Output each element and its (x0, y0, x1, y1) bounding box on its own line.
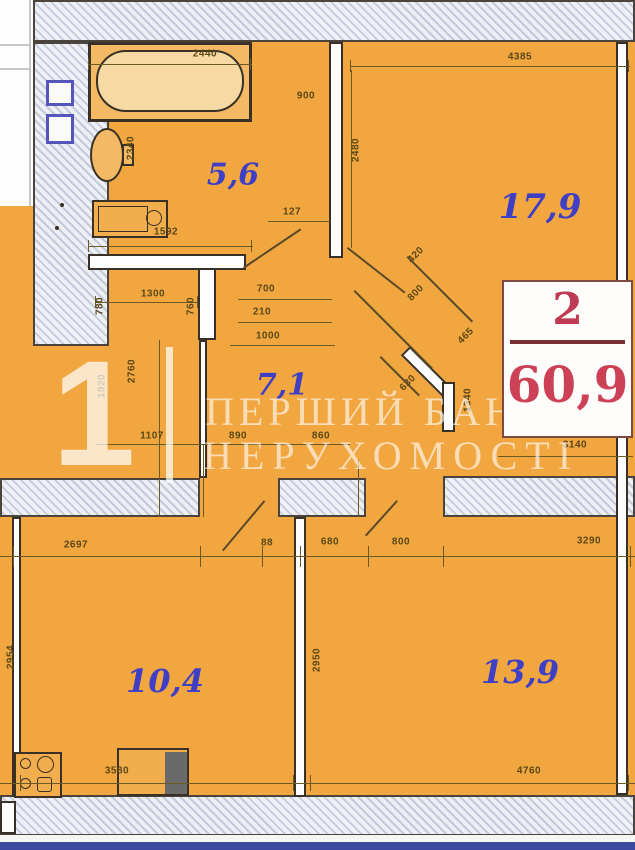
dim-niche-w: 700 (257, 284, 275, 295)
wall-bottom (0, 795, 635, 836)
watermark-numeral: 1 (52, 338, 135, 488)
stove-burner-2 (37, 756, 54, 773)
dim-living-left: 2480 (351, 138, 362, 162)
bottom-blue-strip (0, 842, 635, 850)
dim-living-top: 4385 (508, 52, 532, 63)
dim-bath-top: 2440 (193, 49, 217, 60)
room-label-kitchen: 10,4 (126, 662, 204, 700)
dim-entry-a: 800 (406, 283, 427, 304)
door-bedroom (365, 500, 398, 536)
wall-corridor-2 (278, 478, 366, 517)
wall-corridor-3 (443, 476, 635, 517)
wall-bath-right (329, 42, 343, 258)
listing-badge: 2 60,9 (502, 280, 633, 438)
wall-closet (198, 268, 216, 340)
watermark-bar (166, 347, 173, 483)
wall-bath-bottom (88, 254, 246, 270)
wall-top (33, 0, 635, 42)
washer-sink-inner (98, 206, 148, 232)
room-label-bathroom: 5,6 (207, 158, 259, 193)
badge-total-area: 60,9 (504, 344, 631, 426)
dim-kitchen-top: 2697 (64, 540, 88, 551)
dim-bedroom-top: 3290 (577, 536, 601, 547)
dim-cor-b: 680 (321, 537, 339, 548)
dim-kitchen-left: 2954 (6, 645, 17, 669)
dim-closet-b: 760 (186, 297, 197, 315)
room-label-bedroom: 13,9 (481, 653, 559, 691)
stove-burner-1 (20, 758, 31, 769)
bottom-white-strip (0, 835, 635, 842)
badge-room-count: 2 (504, 282, 631, 338)
bathtub-inner (96, 50, 244, 112)
dim-bath-right: 900 (297, 91, 315, 102)
dim-niche-total: 1000 (256, 331, 280, 342)
kitchen-sink-block (165, 752, 187, 794)
dim-cor-a: 88 (261, 538, 273, 549)
electric-panel-icon (46, 80, 74, 106)
stove-burner-4 (37, 777, 52, 792)
watermark-line1: ПЕРШИЙ БАНК (205, 388, 551, 435)
dot-1 (60, 203, 64, 207)
dim-entry-b: 465 (456, 326, 477, 347)
door-entry (347, 247, 405, 293)
dim-closet-w: 1300 (141, 289, 165, 300)
dim-entry-door: 420 (406, 245, 427, 266)
door-kitchen (222, 500, 265, 551)
electric-panel-icon-2 (46, 114, 74, 144)
floor-plan: 2440 4385 900 2340 1592 127 2480 420 800… (0, 0, 635, 850)
dim-hall-a: 1107 (140, 431, 164, 442)
toilet-icon (90, 128, 124, 182)
dot-2 (55, 226, 59, 230)
watermark-line2: НЕРУХОМОСТІ (203, 432, 579, 479)
dim-kitchen-bottom: 3580 (105, 766, 129, 777)
room-label-living: 17,9 (499, 187, 582, 227)
dim-cor-c: 800 (392, 537, 410, 548)
dim-bedroom-bottom: 4760 (517, 766, 541, 777)
washer-sink-bowl (146, 210, 162, 226)
dim-niche-d: 210 (253, 307, 271, 318)
dim-closet-a: 780 (95, 297, 106, 315)
window (0, 801, 16, 834)
dim-bath-sink: 1592 (154, 227, 178, 238)
dim-bath-door: 127 (283, 207, 301, 218)
dim-bedroom-left: 2950 (312, 648, 323, 672)
dim-wc: 2340 (126, 136, 137, 160)
